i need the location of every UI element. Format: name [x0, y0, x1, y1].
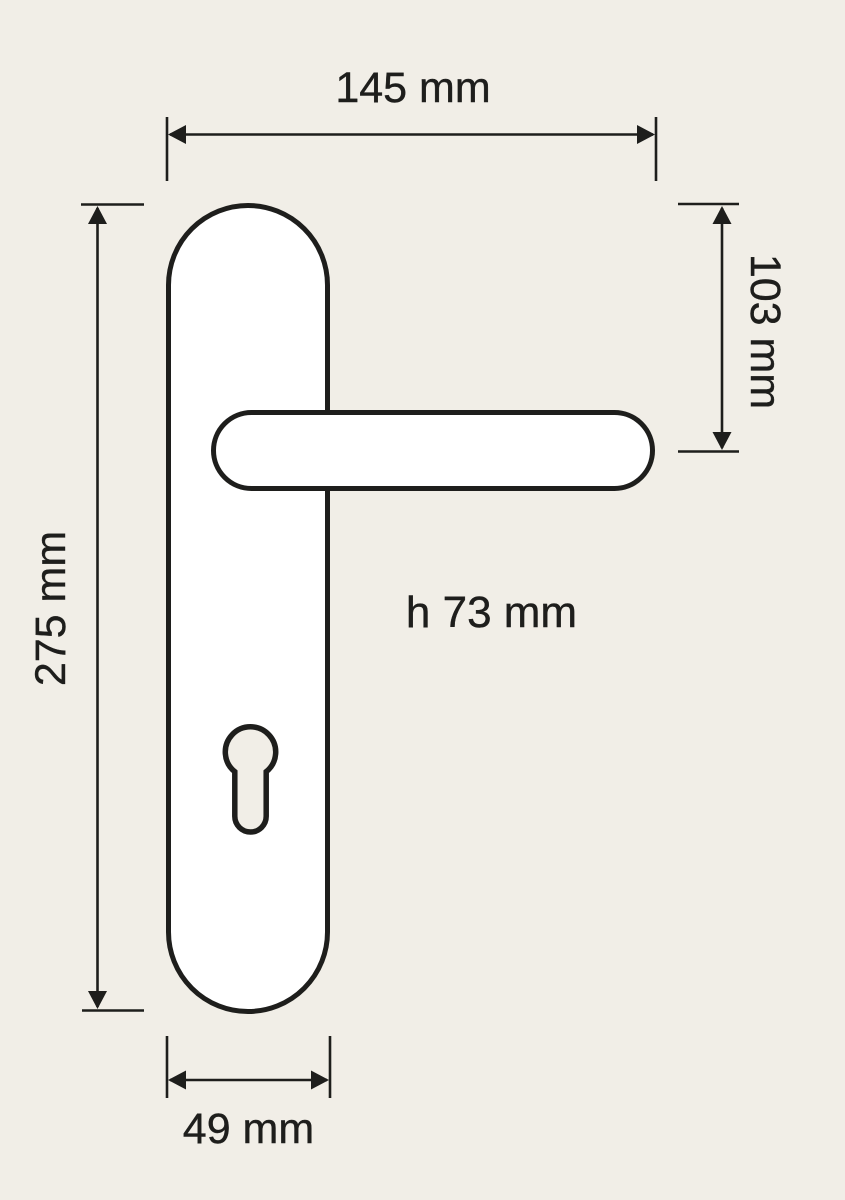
- svg-text:145 mm: 145 mm: [335, 64, 490, 112]
- svg-text:49 mm: 49 mm: [183, 1105, 314, 1153]
- svg-text:h 73 mm: h 73 mm: [406, 588, 577, 637]
- svg-text:275 mm: 275 mm: [27, 531, 75, 686]
- svg-text:103 mm: 103 mm: [741, 254, 789, 409]
